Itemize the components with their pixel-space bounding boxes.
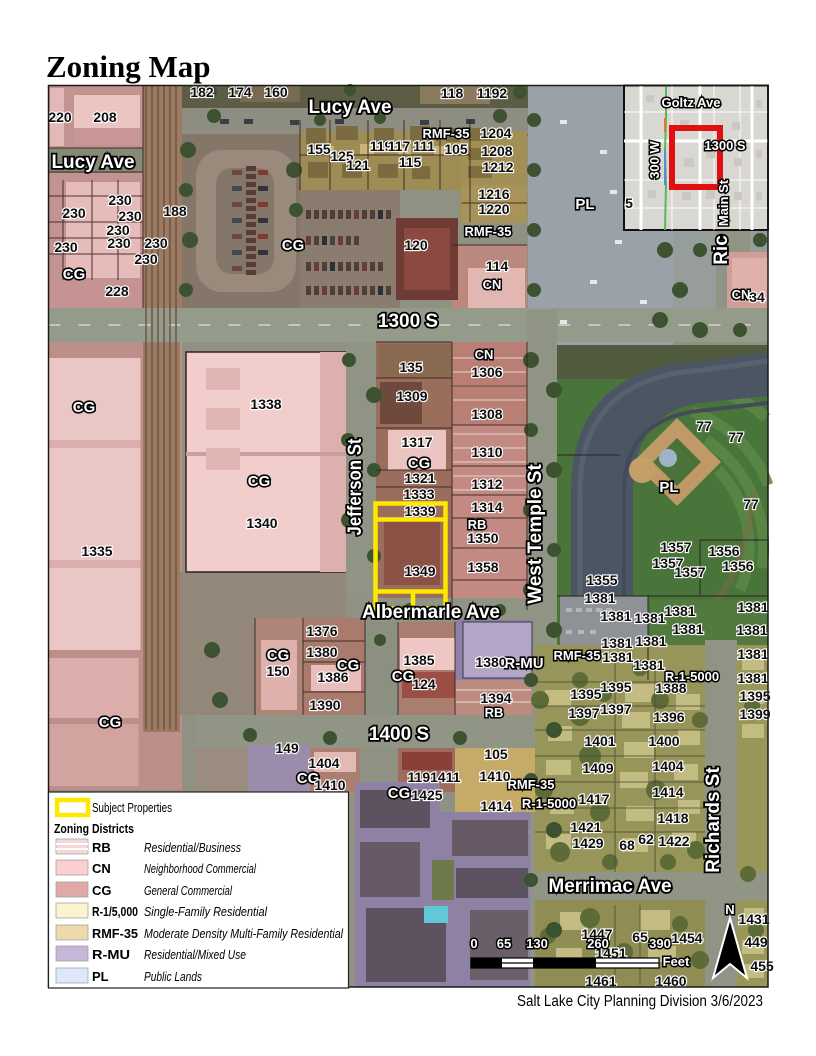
svg-text:Ric: Ric [711, 235, 732, 265]
svg-text:390: 390 [649, 936, 671, 951]
svg-text:Zoning Map: Zoning Map [46, 49, 211, 84]
svg-text:CG: CG [248, 473, 271, 490]
svg-text:1357: 1357 [660, 539, 691, 555]
svg-text:1417: 1417 [578, 791, 609, 807]
svg-text:R-MU: R-MU [504, 655, 543, 672]
svg-text:1208: 1208 [481, 143, 512, 159]
svg-text:1385: 1385 [403, 652, 434, 668]
svg-text:68: 68 [619, 837, 635, 853]
svg-text:1397: 1397 [600, 701, 631, 717]
svg-text:1312: 1312 [471, 476, 502, 492]
svg-text:1409: 1409 [582, 760, 613, 776]
svg-text:1414: 1414 [652, 784, 683, 800]
svg-text:1410: 1410 [314, 777, 345, 793]
svg-text:1395: 1395 [570, 686, 601, 702]
svg-text:1381: 1381 [634, 610, 665, 626]
svg-text:77: 77 [728, 429, 744, 445]
svg-text:149: 149 [275, 740, 299, 756]
svg-text:230: 230 [107, 235, 131, 251]
svg-text:Main St: Main St [716, 179, 731, 226]
svg-text:Moderate Density Multi-Family: Moderate Density Multi-Family Residentia… [144, 927, 344, 941]
svg-text:1339: 1339 [404, 503, 435, 519]
svg-text:160: 160 [264, 84, 288, 100]
svg-text:1388: 1388 [655, 680, 686, 696]
svg-text:1381: 1381 [664, 603, 695, 619]
svg-text:Subject Properties: Subject Properties [92, 800, 172, 815]
svg-text:Goltz Ave: Goltz Ave [662, 95, 721, 110]
svg-text:1396: 1396 [653, 709, 684, 725]
svg-text:RMF-35: RMF-35 [508, 777, 555, 792]
svg-text:77: 77 [696, 418, 712, 434]
svg-text:1317: 1317 [401, 434, 432, 450]
svg-text:1338: 1338 [250, 396, 281, 412]
svg-text:1220: 1220 [478, 201, 509, 217]
svg-text:1380: 1380 [306, 644, 337, 660]
svg-text:1340: 1340 [246, 515, 277, 531]
svg-text:230: 230 [108, 192, 132, 208]
svg-text:RMF-35: RMF-35 [92, 926, 138, 941]
svg-text:Jefferson St: Jefferson St [345, 438, 366, 536]
svg-text:114: 114 [486, 258, 509, 274]
svg-text:1404: 1404 [652, 758, 683, 774]
svg-text:1306: 1306 [471, 364, 502, 380]
svg-text:208: 208 [93, 109, 117, 125]
svg-text:1376: 1376 [306, 623, 337, 639]
svg-text:Neighborhood Commercial: Neighborhood Commercial [144, 862, 257, 876]
svg-text:1390: 1390 [309, 697, 340, 713]
svg-text:1399: 1399 [739, 706, 770, 722]
svg-text:1381: 1381 [737, 670, 768, 686]
svg-text:1400 S: 1400 S [369, 724, 429, 745]
svg-text:CN: CN [732, 287, 751, 302]
svg-text:CN: CN [483, 277, 502, 292]
svg-text:182: 182 [190, 84, 214, 100]
svg-text:230: 230 [134, 251, 158, 267]
svg-text:1429: 1429 [572, 835, 603, 851]
svg-text:1380: 1380 [475, 654, 506, 670]
svg-text:West Temple St: West Temple St [525, 463, 546, 603]
svg-text:1414: 1414 [480, 798, 511, 814]
svg-text:34: 34 [749, 289, 765, 305]
svg-text:1454: 1454 [671, 930, 702, 946]
svg-text:1400: 1400 [648, 733, 679, 749]
svg-text:General Commercial: General Commercial [144, 884, 233, 898]
svg-text:CG: CG [282, 237, 305, 254]
svg-text:130: 130 [526, 936, 548, 951]
svg-text:1381: 1381 [672, 621, 703, 637]
svg-text:1404: 1404 [308, 755, 339, 771]
svg-text:1216: 1216 [478, 186, 509, 202]
svg-text:1191411: 1191411 [408, 769, 461, 785]
svg-text:PL: PL [92, 969, 109, 984]
svg-text:1431: 1431 [738, 911, 769, 927]
svg-text:65: 65 [497, 936, 511, 951]
svg-text:Feet: Feet [663, 954, 690, 969]
svg-text:Public Lands: Public Lands [144, 970, 202, 984]
svg-text:118: 118 [441, 85, 464, 101]
svg-text:1357: 1357 [674, 564, 705, 580]
svg-text:230: 230 [54, 239, 78, 255]
svg-text:174: 174 [228, 84, 252, 100]
svg-text:1356: 1356 [722, 558, 753, 574]
svg-text:PL: PL [575, 196, 594, 213]
svg-text:0: 0 [470, 936, 477, 951]
svg-text:1355: 1355 [586, 572, 617, 588]
svg-text:1418: 1418 [657, 810, 688, 826]
svg-text:R-1-5000: R-1-5000 [522, 796, 576, 811]
svg-text:RMF-35: RMF-35 [554, 648, 601, 663]
svg-text:121: 121 [346, 157, 370, 173]
svg-text:R-1/5,000: R-1/5,000 [92, 904, 138, 919]
svg-text:1310: 1310 [471, 444, 502, 460]
svg-text:RB: RB [92, 840, 111, 855]
svg-text:1192: 1192 [477, 85, 508, 101]
svg-text:1397: 1397 [568, 705, 599, 721]
svg-text:1300 S: 1300 S [704, 138, 746, 153]
svg-text:1350: 1350 [467, 530, 498, 546]
svg-text:1212: 1212 [482, 159, 513, 175]
svg-text:CG: CG [388, 785, 411, 802]
svg-text:CG: CG [92, 883, 112, 898]
svg-text:1300 S: 1300 S [378, 311, 438, 332]
svg-text:1410: 1410 [479, 768, 510, 784]
svg-text:Residential/Business: Residential/Business [144, 841, 241, 855]
svg-text:1309: 1309 [396, 388, 427, 404]
svg-text:65: 65 [632, 929, 648, 945]
svg-text:115: 115 [399, 154, 422, 170]
svg-text:Salt Lake City Planning Divisi: Salt Lake City Planning Division 3/6/202… [517, 993, 763, 1010]
svg-text:77: 77 [743, 496, 759, 512]
svg-text:220: 220 [48, 109, 72, 125]
svg-text:1321: 1321 [404, 470, 435, 486]
svg-text:105: 105 [444, 141, 468, 157]
svg-text:1381: 1381 [584, 590, 615, 606]
svg-text:1395: 1395 [600, 679, 631, 695]
svg-text:1381: 1381 [737, 646, 768, 662]
svg-text:230: 230 [144, 235, 168, 251]
svg-text:1204: 1204 [480, 125, 511, 141]
svg-text:CN: CN [92, 861, 111, 876]
svg-text:5: 5 [625, 195, 633, 211]
svg-text:455: 455 [750, 958, 774, 974]
svg-text:1386: 1386 [317, 669, 348, 685]
svg-text:120: 120 [404, 237, 428, 253]
svg-text:1422: 1422 [658, 833, 689, 849]
svg-text:Richards St: Richards St [703, 767, 724, 873]
svg-text:1308: 1308 [471, 406, 502, 422]
svg-text:1381: 1381 [737, 599, 768, 615]
svg-text:Zoning Districts: Zoning Districts [54, 821, 134, 836]
svg-text:124: 124 [412, 676, 436, 692]
svg-text:1394: 1394 [480, 690, 511, 706]
svg-text:1381: 1381 [602, 649, 633, 665]
svg-text:Merrimac Ave: Merrimac Ave [548, 876, 671, 897]
svg-text:CG: CG [73, 399, 96, 416]
svg-text:RMF-35: RMF-35 [465, 224, 512, 239]
svg-text:1381: 1381 [736, 622, 767, 638]
svg-text:449: 449 [744, 934, 768, 950]
svg-text:62: 62 [638, 831, 654, 847]
svg-text:1395: 1395 [739, 688, 770, 704]
svg-text:1421: 1421 [570, 819, 601, 835]
svg-text:155: 155 [307, 141, 331, 157]
svg-text:111: 111 [413, 138, 435, 154]
svg-text:Single-Family Residential: Single-Family Residential [144, 905, 268, 919]
svg-text:228: 228 [105, 283, 129, 299]
svg-text:150: 150 [266, 663, 290, 679]
svg-text:Lucy Ave: Lucy Ave [51, 152, 134, 173]
svg-text:Residential/Mixed Use: Residential/Mixed Use [144, 948, 246, 962]
svg-text:1335: 1335 [81, 543, 112, 559]
svg-text:1356: 1356 [708, 543, 739, 559]
svg-text:PL: PL [659, 479, 678, 496]
svg-text:300 W: 300 W [647, 140, 662, 178]
svg-text:CG: CG [63, 266, 86, 283]
svg-text:CN: CN [475, 347, 494, 362]
svg-text:1425: 1425 [411, 787, 442, 803]
svg-text:188: 188 [163, 203, 187, 219]
svg-text:Albermarle Ave: Albermarle Ave [362, 602, 500, 623]
svg-text:1381: 1381 [635, 633, 666, 649]
svg-text:RB: RB [485, 705, 504, 720]
svg-text:117: 117 [388, 138, 411, 154]
svg-text:1349: 1349 [404, 563, 435, 579]
svg-text:105: 105 [484, 746, 508, 762]
svg-text:1381: 1381 [600, 608, 631, 624]
svg-text:1333: 1333 [403, 486, 434, 502]
svg-text:135: 135 [399, 359, 423, 375]
svg-text:260: 260 [587, 936, 609, 951]
svg-text:1358: 1358 [467, 559, 498, 575]
svg-text:Lucy Ave: Lucy Ave [308, 97, 391, 118]
svg-text:CG: CG [267, 647, 290, 664]
svg-text:1381: 1381 [633, 657, 664, 673]
svg-text:CG: CG [99, 714, 122, 731]
svg-text:CG: CG [392, 668, 415, 685]
svg-text:R-MU: R-MU [92, 947, 130, 962]
svg-text:1314: 1314 [471, 499, 502, 515]
svg-text:1401: 1401 [584, 733, 615, 749]
svg-text:230: 230 [62, 205, 86, 221]
